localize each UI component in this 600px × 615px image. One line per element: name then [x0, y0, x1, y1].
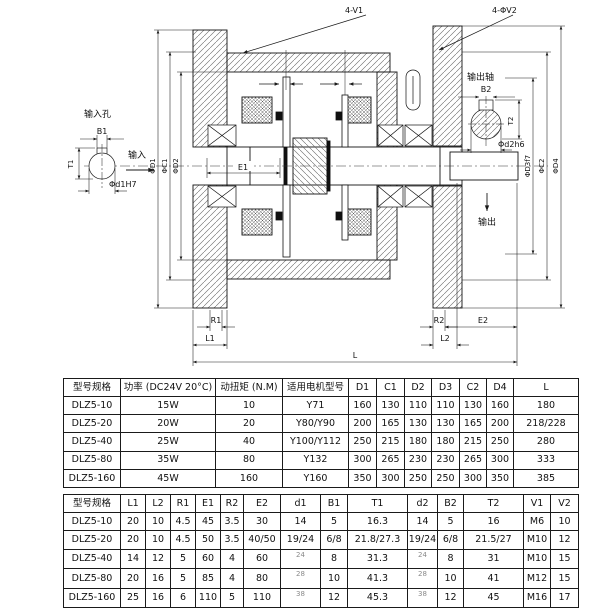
value-cell: 160: [349, 397, 377, 415]
value-cell: 215: [377, 433, 405, 451]
value-cell: Y100/Y112: [283, 433, 349, 451]
value-cell: 20: [121, 513, 146, 531]
value-cell: 14: [408, 513, 438, 531]
value-cell: 130: [377, 397, 405, 415]
label-l: L: [353, 351, 358, 360]
value-cell: 215: [460, 433, 487, 451]
value-cell: 200: [487, 415, 514, 433]
column-header: R1: [171, 495, 196, 513]
table-row: DLZ5-8035W80Y132300265230230265300333: [64, 451, 579, 469]
value-cell: 15: [551, 569, 579, 588]
value-cell: 10: [551, 513, 579, 531]
model-cell: DLZ5-160: [64, 588, 121, 607]
value-cell: 6/8: [321, 531, 348, 549]
table-row: DLZ5-2020104.5503.540/5019/246/821.8/27.…: [64, 531, 579, 549]
value-cell: 5: [171, 569, 196, 588]
label-l2: L2: [440, 334, 450, 343]
value-cell: 250: [349, 433, 377, 451]
value-cell: 45: [464, 588, 524, 607]
label-output-shaft: 输出轴: [467, 71, 494, 83]
value-cell: 180: [514, 397, 579, 415]
value-cell: 45: [196, 513, 221, 531]
label-e1: E1: [238, 163, 248, 172]
value-cell: Y71: [283, 397, 349, 415]
value-cell: 80: [216, 451, 283, 469]
value-cell: 5: [221, 588, 244, 607]
value-cell: 250: [487, 433, 514, 451]
value-cell: 160: [216, 469, 283, 487]
table-row: DLZ5-802016585480281041.3281041M1215: [64, 569, 579, 588]
table-row: DLZ5-16045W160Y160350300250250300350385: [64, 469, 579, 487]
value-cell: 5: [321, 513, 348, 531]
label-dia-d3: ΦD3f7: [524, 155, 532, 177]
value-cell: 40/50: [244, 531, 281, 549]
label-b1: B1: [97, 127, 108, 136]
column-header: 功率 (DC24V 20°C): [121, 379, 216, 397]
label-4v2: 4-ΦV2: [492, 6, 517, 15]
value-cell: 16: [146, 569, 171, 588]
value-cell: 130: [460, 397, 487, 415]
value-cell: 10: [438, 569, 464, 588]
value-cell: 15W: [121, 397, 216, 415]
column-header: 动扭矩 (N.M): [216, 379, 283, 397]
value-cell: 24: [408, 549, 438, 568]
value-cell: 85: [196, 569, 221, 588]
model-cell: DLZ5-40: [64, 433, 121, 451]
column-header: C2: [460, 379, 487, 397]
value-cell: 28: [281, 569, 321, 588]
value-cell: 12: [438, 588, 464, 607]
label-t2: T2: [507, 117, 515, 127]
table-row: DLZ5-40141256046024831.324831M1015: [64, 549, 579, 568]
value-cell: Y80/Y90: [283, 415, 349, 433]
left-flange: [193, 30, 227, 308]
label-b2: B2: [481, 85, 492, 94]
header-row: 型号规格功率 (DC24V 20°C)动扭矩 (N.M)适用电机型号D1C1D2…: [64, 379, 579, 397]
value-cell: 110: [432, 397, 460, 415]
value-cell: 110: [244, 588, 281, 607]
column-header: D3: [432, 379, 460, 397]
model-cell: DLZ5-20: [64, 415, 121, 433]
value-cell: 19/24: [281, 531, 321, 549]
value-cell: 12: [551, 531, 579, 549]
column-header: V2: [551, 495, 579, 513]
column-header: 型号规格: [64, 495, 121, 513]
label-d2h6: Φd2h6: [498, 140, 525, 149]
column-header: C1: [377, 379, 405, 397]
value-cell: 15: [551, 549, 579, 568]
input-hole-detail: 输入孔 B1 T1 Φd1H7 输入: [67, 108, 154, 194]
value-cell: 12: [321, 588, 348, 607]
clutch-datasheet-page: 4-V1 4-ΦV2 ΦD1 ΦC1 ΦD2: [0, 0, 600, 615]
value-cell: 8: [321, 549, 348, 568]
value-cell: 280: [514, 433, 579, 451]
value-cell: 45.3: [348, 588, 408, 607]
value-cell: 14: [281, 513, 321, 531]
column-header: E1: [196, 495, 221, 513]
value-cell: 20: [216, 415, 283, 433]
value-cell: 200: [349, 415, 377, 433]
value-cell: 60: [244, 549, 281, 568]
value-cell: 6/8: [438, 531, 464, 549]
assembly-drawing: 4-V1 4-ΦV2 ΦD1 ΦC1 ΦD2: [0, 0, 600, 376]
value-cell: 230: [432, 451, 460, 469]
column-header: B1: [321, 495, 348, 513]
label-d1h7: Φd1H7: [109, 180, 137, 189]
label-dia-c2: ΦC2: [538, 159, 546, 174]
value-cell: 24: [281, 549, 321, 568]
value-cell: 80: [244, 569, 281, 588]
label-e2: E2: [478, 316, 488, 325]
model-cell: DLZ5-20: [64, 531, 121, 549]
value-cell: 40: [216, 433, 283, 451]
value-cell: 12: [146, 549, 171, 568]
label-input-hole: 输入孔: [84, 108, 111, 120]
value-cell: 300: [349, 451, 377, 469]
value-cell: 28: [408, 569, 438, 588]
value-cell: 25W: [121, 433, 216, 451]
column-header: 型号规格: [64, 379, 121, 397]
table-row: DLZ5-1015W10Y71160130110110130160180: [64, 397, 579, 415]
value-cell: 8: [438, 549, 464, 568]
value-cell: 20: [121, 569, 146, 588]
value-cell: 300: [377, 469, 405, 487]
column-header: d2: [408, 495, 438, 513]
header-row: 型号规格L1L2R1E1R2E2d1B1T1d2B2T2V1V2: [64, 495, 579, 513]
label-l1: L1: [205, 334, 215, 343]
value-cell: 350: [349, 469, 377, 487]
value-cell: 110: [196, 588, 221, 607]
column-header: L2: [146, 495, 171, 513]
model-cell: DLZ5-80: [64, 451, 121, 469]
value-cell: 19/24: [408, 531, 438, 549]
value-cell: 21.8/27.3: [348, 531, 408, 549]
column-header: T2: [464, 495, 524, 513]
column-header: T1: [348, 495, 408, 513]
label-r2: R2: [434, 316, 445, 325]
label-dia-c1: ΦC1: [161, 159, 169, 174]
value-cell: 230: [405, 451, 432, 469]
value-cell: 130: [432, 415, 460, 433]
column-header: 适用电机型号: [283, 379, 349, 397]
model-cell: DLZ5-10: [64, 397, 121, 415]
value-cell: 60: [196, 549, 221, 568]
value-cell: 4: [221, 569, 244, 588]
model-cell: DLZ5-10: [64, 513, 121, 531]
label-output: 输出: [478, 216, 496, 228]
value-cell: 4.5: [171, 513, 196, 531]
value-cell: 10: [146, 531, 171, 549]
table-row: DLZ5-4025W40Y100/Y1122502151801802152502…: [64, 433, 579, 451]
value-cell: 31: [464, 549, 524, 568]
value-cell: M10: [524, 531, 551, 549]
value-cell: M16: [524, 588, 551, 607]
value-cell: 30: [244, 513, 281, 531]
table-row: DLZ5-1020104.5453.53014516.314516M610: [64, 513, 579, 531]
value-cell: 300: [460, 469, 487, 487]
label-t1: T1: [67, 160, 75, 170]
value-cell: 218/228: [514, 415, 579, 433]
value-cell: 165: [460, 415, 487, 433]
column-header: D1: [349, 379, 377, 397]
value-cell: 110: [405, 397, 432, 415]
value-cell: 180: [405, 433, 432, 451]
label-4v1: 4-V1: [345, 6, 363, 15]
value-cell: 5: [438, 513, 464, 531]
value-cell: M10: [524, 549, 551, 568]
value-cell: 160: [487, 397, 514, 415]
value-cell: 4.5: [171, 531, 196, 549]
value-cell: 350: [487, 469, 514, 487]
value-cell: 6: [171, 588, 196, 607]
value-cell: 45W: [121, 469, 216, 487]
column-header: D2: [405, 379, 432, 397]
label-dia-d2: ΦD2: [172, 158, 180, 173]
label-r1: R1: [211, 316, 222, 325]
label-input: 输入: [128, 149, 146, 161]
brush-slot: [406, 70, 420, 110]
value-cell: 10: [321, 569, 348, 588]
column-header: d1: [281, 495, 321, 513]
value-cell: 14: [121, 549, 146, 568]
spec-table-2: 型号规格L1L2R1E1R2E2d1B1T1d2B2T2V1V2DLZ5-102…: [63, 494, 579, 608]
value-cell: 300: [487, 451, 514, 469]
value-cell: Y160: [283, 469, 349, 487]
value-cell: M6: [524, 513, 551, 531]
model-cell: DLZ5-160: [64, 469, 121, 487]
hole-callouts: 4-V1 4-ΦV2: [243, 6, 517, 53]
column-header: B2: [438, 495, 464, 513]
value-cell: 180: [432, 433, 460, 451]
value-cell: 50: [196, 531, 221, 549]
value-cell: 31.3: [348, 549, 408, 568]
model-cell: DLZ5-40: [64, 549, 121, 568]
model-cell: DLZ5-80: [64, 569, 121, 588]
value-cell: 5: [171, 549, 196, 568]
column-header: L: [514, 379, 579, 397]
label-dia-d1: ΦD1: [149, 158, 157, 173]
value-cell: 250: [432, 469, 460, 487]
column-header: L1: [121, 495, 146, 513]
value-cell: 4: [221, 549, 244, 568]
value-cell: 130: [405, 415, 432, 433]
value-cell: 10: [146, 513, 171, 531]
table-row: DLZ5-160251661105110381245.3381245M1617: [64, 588, 579, 607]
column-header: R2: [221, 495, 244, 513]
value-cell: 333: [514, 451, 579, 469]
value-cell: 3.5: [221, 531, 244, 549]
value-cell: 265: [377, 451, 405, 469]
value-cell: 385: [514, 469, 579, 487]
value-cell: 165: [377, 415, 405, 433]
value-cell: Y132: [283, 451, 349, 469]
value-cell: 17: [551, 588, 579, 607]
value-cell: 35W: [121, 451, 216, 469]
column-header: E2: [244, 495, 281, 513]
value-cell: 250: [405, 469, 432, 487]
value-cell: 21.5/27: [464, 531, 524, 549]
value-cell: 20: [121, 531, 146, 549]
value-cell: 16.3: [348, 513, 408, 531]
table-row: DLZ5-2020W20Y80/Y90200165130130165200218…: [64, 415, 579, 433]
value-cell: 38: [281, 588, 321, 607]
value-cell: 3.5: [221, 513, 244, 531]
value-cell: 20W: [121, 415, 216, 433]
value-cell: M12: [524, 569, 551, 588]
column-header: V1: [524, 495, 551, 513]
label-dia-d4: ΦD4: [552, 158, 560, 174]
value-cell: 16: [464, 513, 524, 531]
value-cell: 38: [408, 588, 438, 607]
value-cell: 10: [216, 397, 283, 415]
value-cell: 25: [121, 588, 146, 607]
value-cell: 16: [146, 588, 171, 607]
value-cell: 265: [460, 451, 487, 469]
column-header: D4: [487, 379, 514, 397]
spec-table-1: 型号规格功率 (DC24V 20°C)动扭矩 (N.M)适用电机型号D1C1D2…: [63, 378, 579, 488]
output-shaft-detail: 输出轴 B2 T2 Φd2h6 输出: [458, 71, 525, 228]
value-cell: 41.3: [348, 569, 408, 588]
value-cell: 41: [464, 569, 524, 588]
